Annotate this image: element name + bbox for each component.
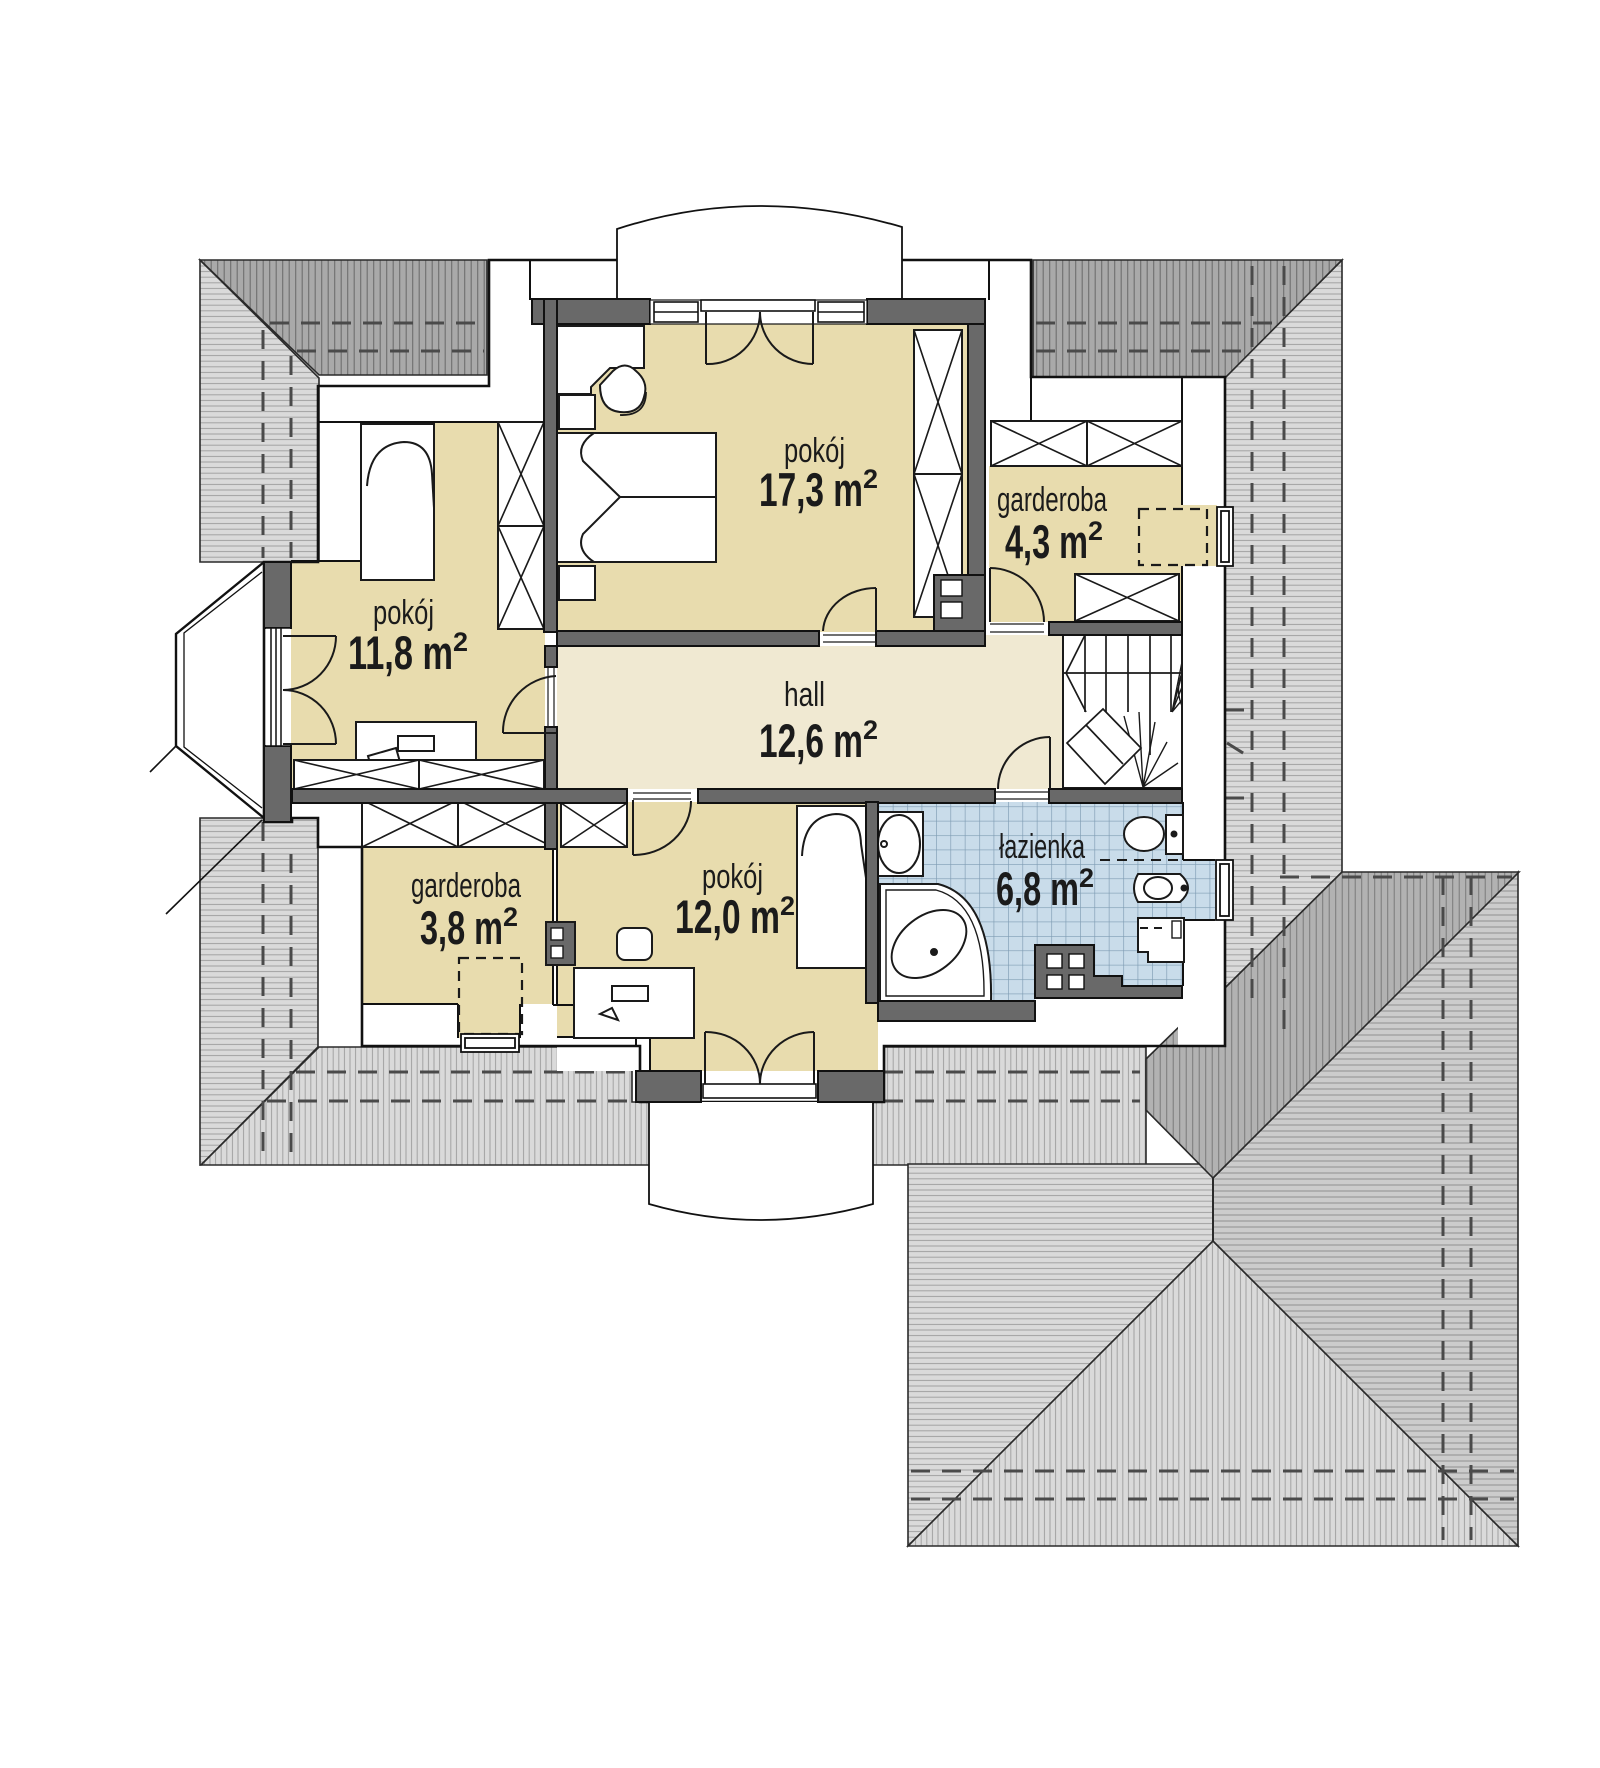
svg-text:3,8 m: 3,8 m bbox=[420, 901, 503, 954]
svg-text:2: 2 bbox=[780, 891, 795, 921]
svg-text:6,8 m: 6,8 m bbox=[996, 862, 1079, 915]
svg-text:12,0 m: 12,0 m bbox=[675, 890, 780, 943]
svg-text:12,6 m: 12,6 m bbox=[759, 714, 863, 767]
svg-text:2: 2 bbox=[503, 902, 518, 932]
svg-text:2: 2 bbox=[1079, 863, 1094, 893]
svg-text:11,8 m: 11,8 m bbox=[348, 626, 453, 679]
svg-text:2: 2 bbox=[863, 464, 878, 494]
svg-text:garderoba: garderoba bbox=[411, 867, 521, 905]
svg-text:4,3 m: 4,3 m bbox=[1005, 515, 1088, 568]
svg-text:17,3 m: 17,3 m bbox=[759, 463, 863, 516]
svg-text:2: 2 bbox=[1088, 516, 1103, 546]
svg-text:łazienka: łazienka bbox=[999, 828, 1085, 866]
svg-text:garderoba: garderoba bbox=[997, 481, 1107, 519]
svg-text:hall: hall bbox=[784, 676, 825, 714]
svg-text:2: 2 bbox=[863, 715, 878, 745]
svg-text:2: 2 bbox=[453, 627, 468, 657]
